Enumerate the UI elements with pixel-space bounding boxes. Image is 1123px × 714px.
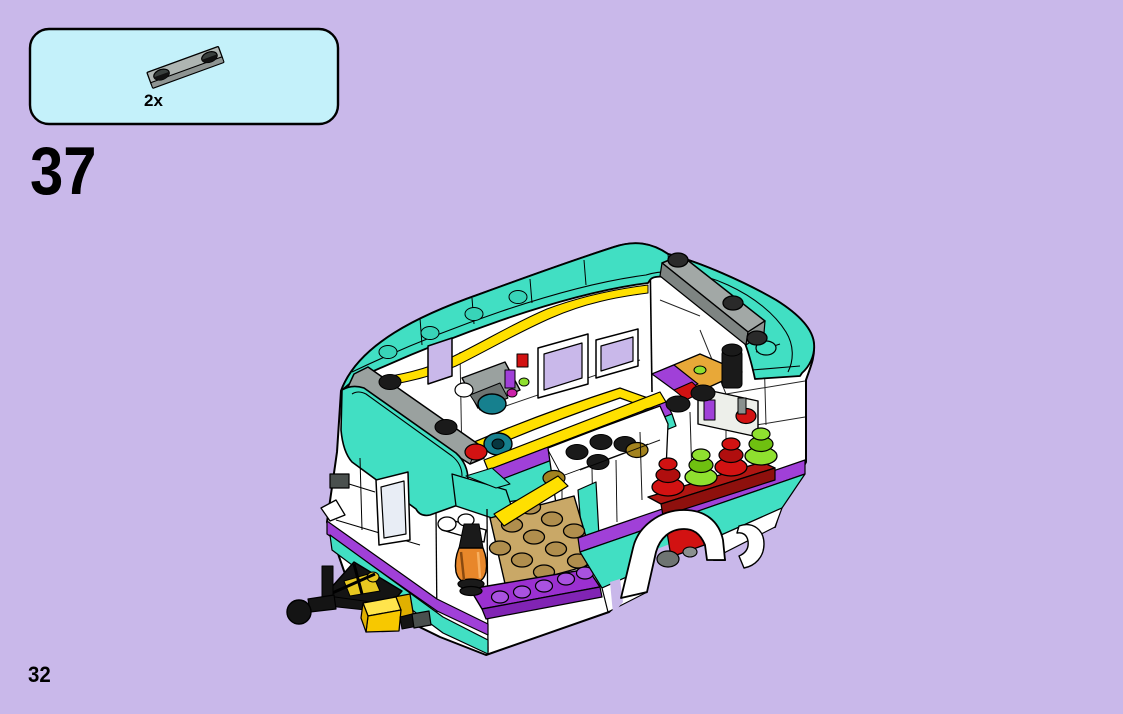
svg-text:37: 37 xyxy=(30,132,97,208)
svg-text:2x: 2x xyxy=(144,91,163,110)
svg-text:32: 32 xyxy=(28,662,51,687)
